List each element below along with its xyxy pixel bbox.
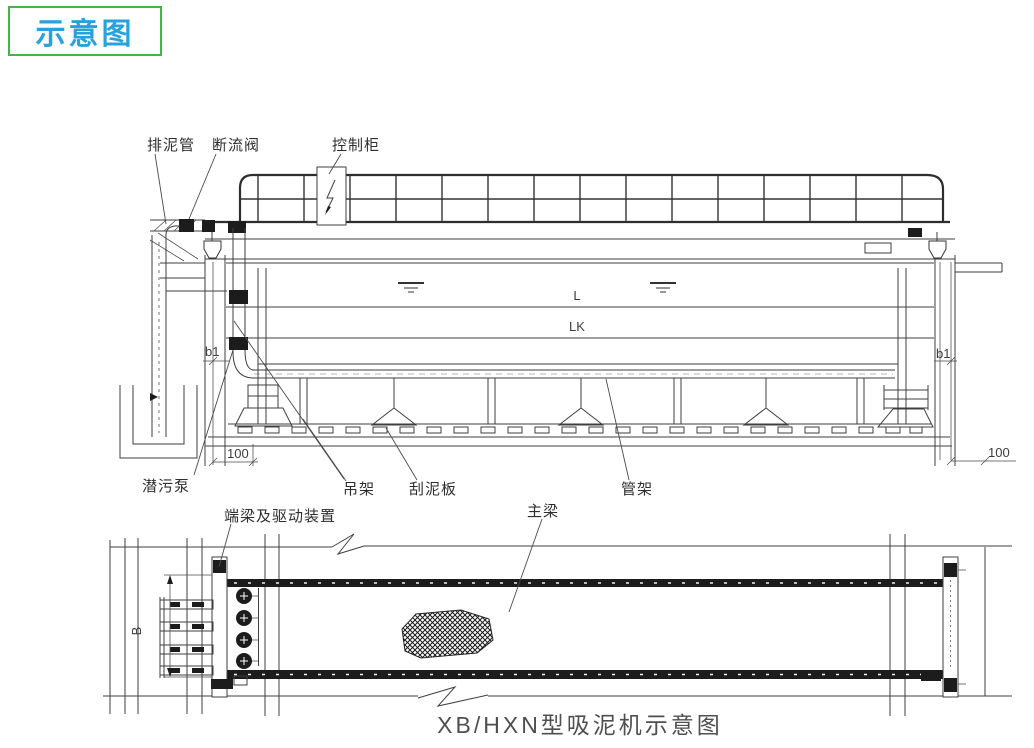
leader-lines-elevation: [155, 154, 629, 481]
break-mark-top: [332, 534, 364, 554]
diagram-title: XB/HXN型吸泥机示意图: [437, 712, 723, 738]
label-pipe-rack: 管架: [621, 481, 653, 498]
control-cabinet: [317, 167, 346, 225]
dim-b1-right: b1: [936, 346, 950, 361]
label-hanger-bracket: 吊架: [343, 481, 375, 498]
suction-pipe: [229, 228, 254, 378]
mud-suction-machine-diagram: 排泥管 断流阀 控制柜 潜污泵 吊架 刮泥板 管架 L LK b1 b1 100…: [0, 0, 1034, 748]
elevation-view: 排泥管 断流阀 控制柜 潜污泵 吊架 刮泥板 管架 L LK b1 b1 100…: [120, 137, 1016, 498]
dim-100-left: 100: [227, 446, 249, 461]
drive-motors: [236, 588, 252, 669]
label-main-beam: 主梁: [527, 503, 559, 520]
wheel-left: [204, 232, 221, 258]
tank-walls: [160, 255, 1002, 466]
shutoff-valve-body: [179, 219, 194, 232]
plan-view: B 端梁及驱动装置 主梁: [103, 503, 1012, 716]
label-drain-pipe: 排泥管: [147, 137, 195, 154]
water-level-icon: [398, 283, 424, 292]
label-end-beam-drive: 端梁及驱动装置: [224, 508, 336, 525]
scraper-floor: [205, 424, 952, 446]
label-shutoff-valve: 断流阀: [212, 137, 260, 154]
wheel-right: [929, 232, 946, 258]
label-submersible-pump: 潜污泵: [142, 478, 190, 495]
submersible-pump-body: [229, 337, 248, 350]
pump-coupling: [229, 290, 248, 304]
dim-b1-left: b1: [205, 344, 219, 359]
bridge-deck: [205, 221, 955, 259]
hatch-region: [402, 610, 493, 658]
label-control-cabinet: 控制柜: [332, 137, 380, 154]
leader-lines-plan: [219, 519, 542, 612]
flow-arrow-icon: [150, 393, 158, 401]
end-carriage-right: [921, 557, 966, 697]
dim-length-L: L: [573, 288, 580, 303]
scraper-plate-marks: [238, 427, 922, 433]
dim-width-B: B: [129, 627, 144, 636]
dim-100-right: 100: [988, 445, 1010, 460]
left-pedestal: [235, 385, 292, 426]
water-level-icon: [650, 283, 676, 292]
label-scraper-plate: 刮泥板: [409, 480, 457, 498]
main-beams: [216, 579, 944, 679]
break-mark-bottom: [418, 687, 488, 706]
sump-pit: [120, 385, 197, 458]
dim-length-LK: LK: [569, 319, 585, 334]
floor-support-triangles: [372, 378, 788, 425]
screenshot-root: 示意图: [0, 0, 1034, 748]
pipe-rack-assembly: [252, 370, 895, 425]
